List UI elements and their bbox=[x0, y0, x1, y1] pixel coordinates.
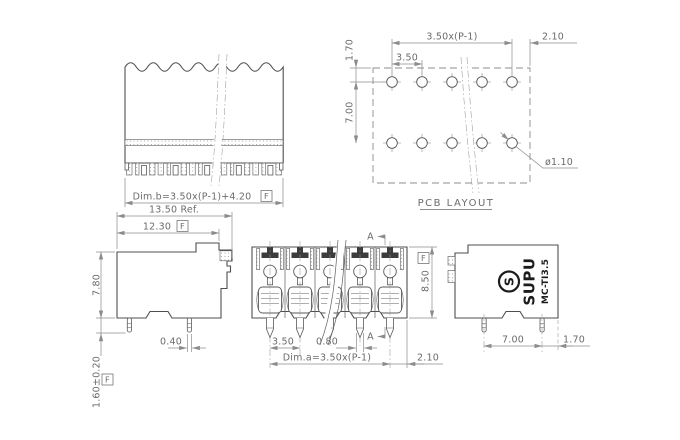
solder-pins bbox=[482, 318, 544, 332]
body-height-label: 7.80 bbox=[92, 274, 103, 296]
mount-tab bbox=[448, 271, 455, 283]
body-width-label: 12.30 bbox=[143, 222, 171, 233]
insulator-band bbox=[125, 140, 283, 146]
technical-drawing: Dim.b=3.50x(P-1)+4.20 F 3.50x(P-1) 2.10 … bbox=[0, 0, 680, 440]
pcb-layout-title: PCB LAYOUT bbox=[418, 198, 495, 209]
pin-width-label: 0.40 bbox=[160, 337, 182, 348]
pitch-label: 3.50 bbox=[272, 337, 294, 348]
body-outline bbox=[117, 243, 232, 318]
dim-a-label: Dim.a=3.50x(P-1) bbox=[283, 353, 371, 364]
solder-pins bbox=[127, 318, 191, 332]
overall-ref-label: 13.50 Ref. bbox=[149, 205, 199, 216]
mount-tab bbox=[448, 257, 455, 266]
break-mask bbox=[461, 57, 479, 193]
hole-diameter-label: ø1.10 bbox=[545, 157, 573, 168]
pcb-holes bbox=[383, 73, 521, 152]
edge-offset-label: 1.70 bbox=[563, 335, 585, 346]
top-offset-label: 1.70 bbox=[345, 39, 356, 61]
side-view-right: S SUPU MC-TI3.5 7.00 1.70 bbox=[448, 245, 590, 352]
flag-label: F bbox=[105, 374, 110, 384]
solder-tab bbox=[220, 251, 232, 261]
pitch-label: 3.50 bbox=[396, 53, 418, 64]
pin-spacing-label: 7.00 bbox=[502, 335, 524, 346]
front-view: A A 3.50 0.80 Dim.a=3.50x(P-1) 2.10 F 8.… bbox=[252, 232, 443, 369]
extension-lines bbox=[350, 39, 530, 82]
pcb-layout-view: 3.50x(P-1) 2.10 3.50 1.70 7.00 ø1.10 PCB… bbox=[345, 32, 579, 210]
dim-b-label: Dim.b=3.50x(P-1)+4.20 bbox=[133, 192, 252, 203]
bottom-teeth bbox=[125, 163, 283, 175]
pin-width-label: 0.80 bbox=[316, 337, 338, 348]
side-view-left: 13.50 Ref. 12.30 F 7.80 1.60±0.20 F 0.40 bbox=[92, 205, 233, 409]
flag-label: F bbox=[180, 221, 185, 231]
section-label-top: A bbox=[367, 232, 374, 243]
drawing-sheet: Dim.b=3.50x(P-1)+4.20 F 3.50x(P-1) 2.10 … bbox=[0, 0, 680, 440]
section-label-bottom: A bbox=[367, 332, 374, 343]
model-label: MC-TI3.5 bbox=[541, 259, 551, 304]
flag-label: F bbox=[421, 253, 426, 263]
height-label: 8.50 bbox=[421, 270, 432, 292]
leader-arrow bbox=[501, 133, 509, 140]
hole-span-label: 3.50x(P-1) bbox=[426, 32, 477, 43]
body-outline bbox=[125, 63, 283, 163]
row-spacing-label: 7.00 bbox=[345, 102, 356, 124]
top-rear-view: Dim.b=3.50x(P-1)+4.20 F bbox=[125, 54, 283, 207]
pin-length-label: 1.60±0.20 bbox=[92, 356, 103, 408]
logo-s-icon: S bbox=[502, 277, 517, 286]
brand-label: SUPU bbox=[521, 257, 539, 305]
edge-offset-label: 2.10 bbox=[417, 353, 439, 364]
edge-offset-label: 2.10 bbox=[542, 32, 564, 43]
flag-label: F bbox=[264, 191, 269, 201]
